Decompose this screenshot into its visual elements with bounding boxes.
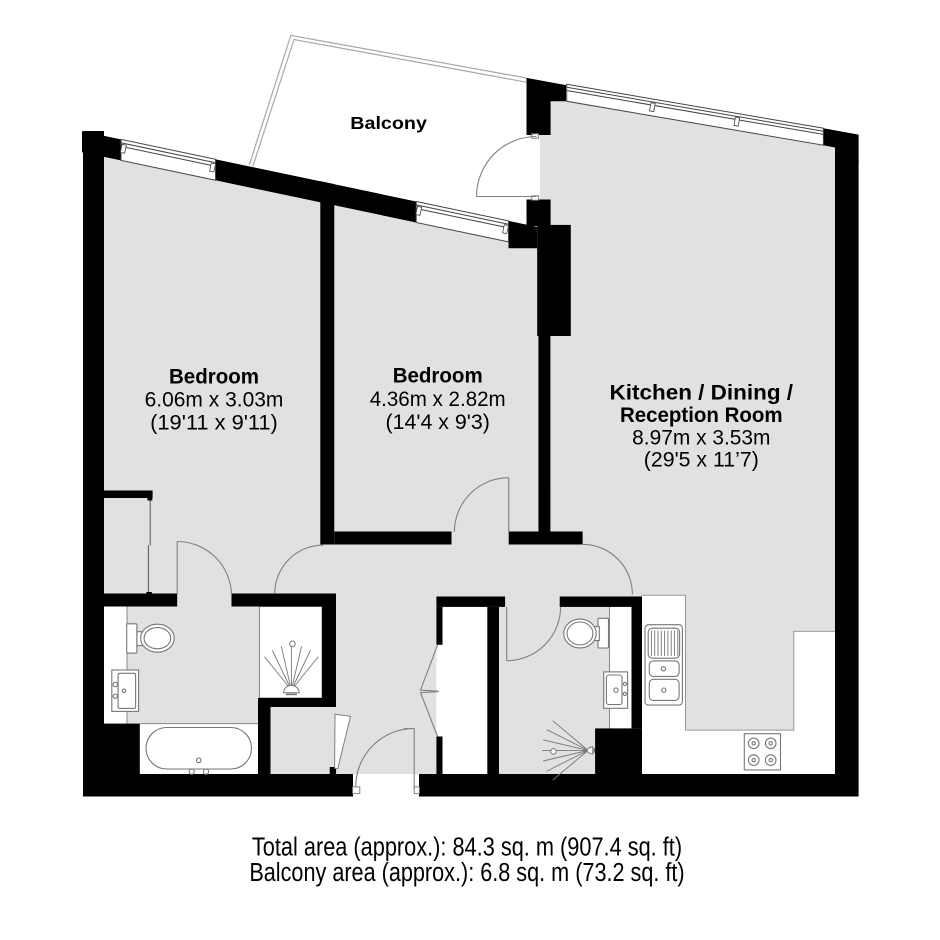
svg-text:6.06m x 3.03m: 6.06m x 3.03m xyxy=(145,387,284,411)
svg-text:(14'4 x 9'3): (14'4 x 9'3) xyxy=(386,410,490,434)
svg-text:8.97m x 3.53m: 8.97m x 3.53m xyxy=(632,425,770,449)
svg-text:4.36m x 2.82m: 4.36m x 2.82m xyxy=(370,387,506,411)
svg-text:Balcony: Balcony xyxy=(350,113,427,133)
svg-text:Reception Room: Reception Room xyxy=(620,403,783,427)
svg-text:Balcony area (approx.): 6.8 sq: Balcony area (approx.): 6.8 sq. m (73.2 … xyxy=(249,857,684,887)
svg-text:Bedroom: Bedroom xyxy=(393,363,483,387)
svg-text:Kitchen / Dining /: Kitchen / Dining / xyxy=(610,381,794,405)
svg-text:(19'11 x 9'11): (19'11 x 9'11) xyxy=(150,411,278,435)
svg-text:(29'5 x 11’7): (29'5 x 11’7) xyxy=(644,448,759,472)
svg-text:Bedroom: Bedroom xyxy=(169,364,259,388)
